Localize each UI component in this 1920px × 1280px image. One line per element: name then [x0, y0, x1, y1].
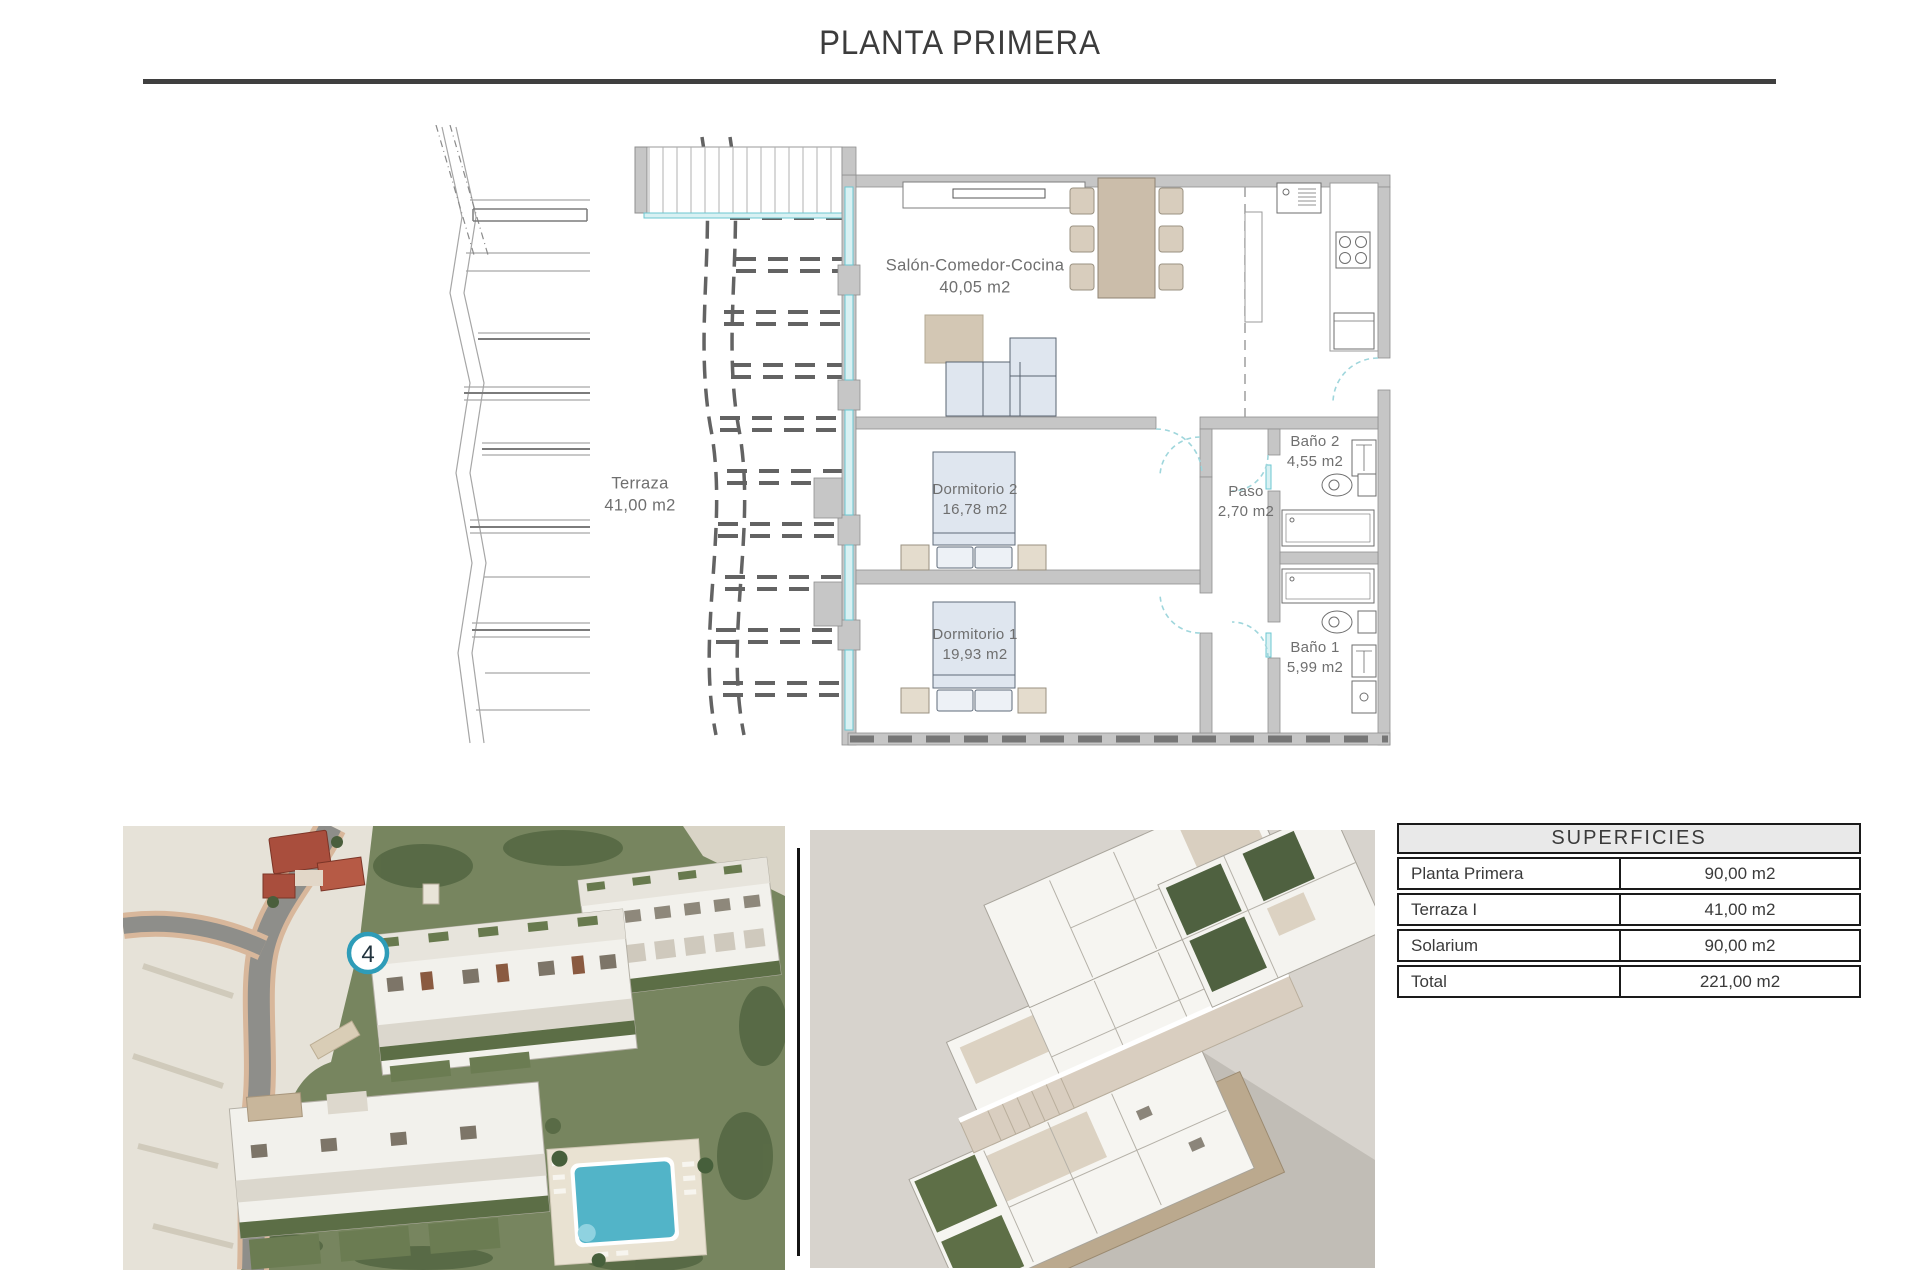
shower-tray-icon	[1282, 510, 1374, 546]
pergola-dashed-lines	[702, 137, 842, 735]
nightstand	[901, 545, 929, 570]
nightstand	[1018, 688, 1046, 713]
table-row-label: Total	[1399, 967, 1621, 996]
room-label-bano1: Baño 1 5,99 m2	[1287, 638, 1343, 679]
pool-area	[547, 1138, 720, 1270]
table-row: Solarium 90,00 m2	[1397, 929, 1861, 962]
kitchen	[1245, 183, 1378, 417]
shower-tray-icon	[1282, 569, 1374, 603]
isometric-render	[810, 830, 1375, 1268]
sink-icon	[1352, 681, 1376, 713]
aerial-photo-drawing: 4	[123, 826, 785, 1270]
superficies-table: SUPERFICIES Planta Primera 90,00 m2 Terr…	[1397, 823, 1861, 998]
terrain-contours	[436, 125, 590, 743]
rug	[925, 315, 983, 363]
page-title: PLANTA PRIMERA	[77, 24, 1843, 63]
pillow	[937, 690, 973, 711]
aerial-photo: 4	[123, 826, 785, 1270]
toilet-icon	[1322, 611, 1352, 633]
floor-plan	[430, 125, 1420, 765]
pillow	[975, 690, 1012, 711]
tv	[953, 189, 1045, 198]
room-label-terraza: Terraza 41,00 m2	[604, 473, 675, 518]
table-row-value: 90,00 m2	[1621, 859, 1859, 888]
pillow	[937, 547, 973, 568]
table-header: SUPERFICIES	[1397, 823, 1861, 854]
room-label-paso: Paso 2,70 m2	[1218, 482, 1274, 523]
room-label-bano2: Baño 2 4,55 m2	[1287, 432, 1343, 473]
table-row-value: 90,00 m2	[1621, 931, 1859, 960]
panel-divider	[797, 848, 800, 1256]
table-row-value: 221,00 m2	[1621, 967, 1859, 996]
room-label-dormitorio2: Dormitorio 2 16,78 m2	[932, 480, 1017, 521]
room-label-dormitorio1: Dormitorio 1 19,93 m2	[932, 625, 1017, 666]
toilet-icon	[1322, 474, 1352, 496]
dining-table	[1098, 178, 1155, 298]
hob-icon	[1336, 232, 1370, 268]
table-row: Terraza I 41,00 m2	[1397, 893, 1861, 926]
floor-plan-drawing	[430, 125, 1420, 765]
stairs-band	[635, 147, 844, 218]
unit-marker-number: 4	[361, 941, 374, 968]
sink-icon	[1277, 183, 1321, 213]
oven-icon	[1334, 313, 1374, 349]
nightstand	[901, 688, 929, 713]
table-row-label: Planta Primera	[1399, 859, 1621, 888]
table-row-label: Solarium	[1399, 931, 1621, 960]
pillow	[975, 547, 1012, 568]
table-row-value: 41,00 m2	[1621, 895, 1859, 924]
title-underline	[143, 79, 1776, 84]
table-row: Total 221,00 m2	[1397, 965, 1861, 998]
isometric-render-drawing	[810, 830, 1375, 1268]
unit-marker: 4	[349, 934, 387, 972]
nightstand	[1018, 545, 1046, 570]
table-row: Planta Primera 90,00 m2	[1397, 857, 1861, 890]
room-label-salon: Salón-Comedor-Cocina 40,05 m2	[886, 255, 1064, 300]
table-row-label: Terraza I	[1399, 895, 1621, 924]
